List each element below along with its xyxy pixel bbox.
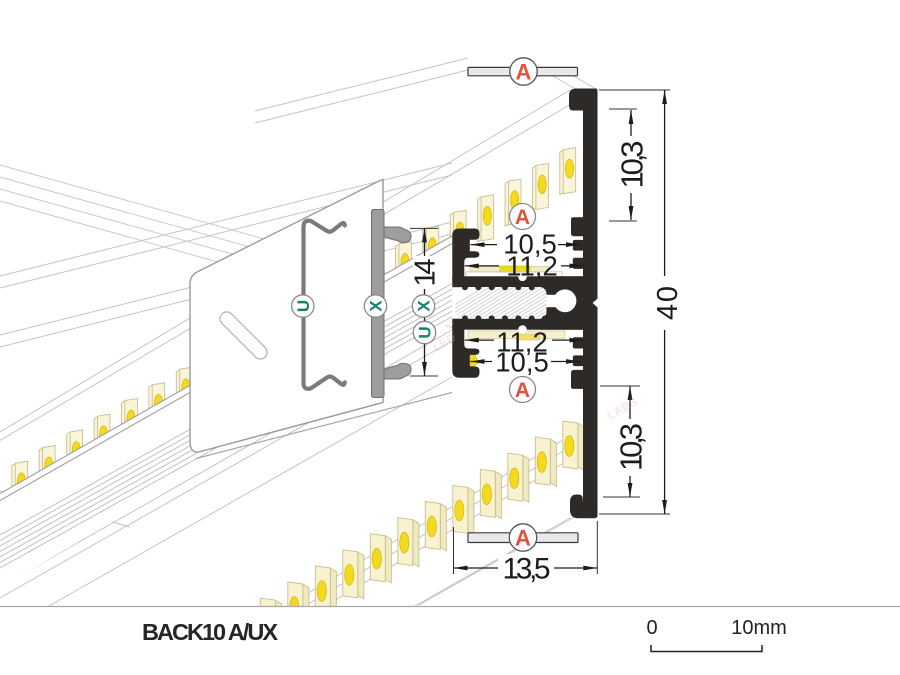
svg-text:10,3: 10,3 [614,423,649,471]
svg-text:10,5: 10,5 [495,347,549,378]
svg-text:X: X [415,300,434,312]
svg-text:A: A [515,379,530,402]
svg-text:U: U [416,326,435,338]
svg-text:40: 40 [652,286,684,320]
svg-text:X: X [367,300,386,312]
svg-text:A: A [515,526,531,551]
svg-text:11,2: 11,2 [506,250,557,281]
svg-text:A: A [515,206,530,229]
svg-text:BACK10 A/UX: BACK10 A/UX [142,619,278,645]
svg-text:0: 0 [646,617,657,639]
svg-text:A: A [516,60,532,85]
svg-text:13,5: 13,5 [503,553,551,586]
svg-text:10,3: 10,3 [615,141,650,189]
svg-text:U: U [294,300,313,312]
svg-text:14: 14 [409,259,441,287]
svg-text:10mm: 10mm [731,617,787,639]
